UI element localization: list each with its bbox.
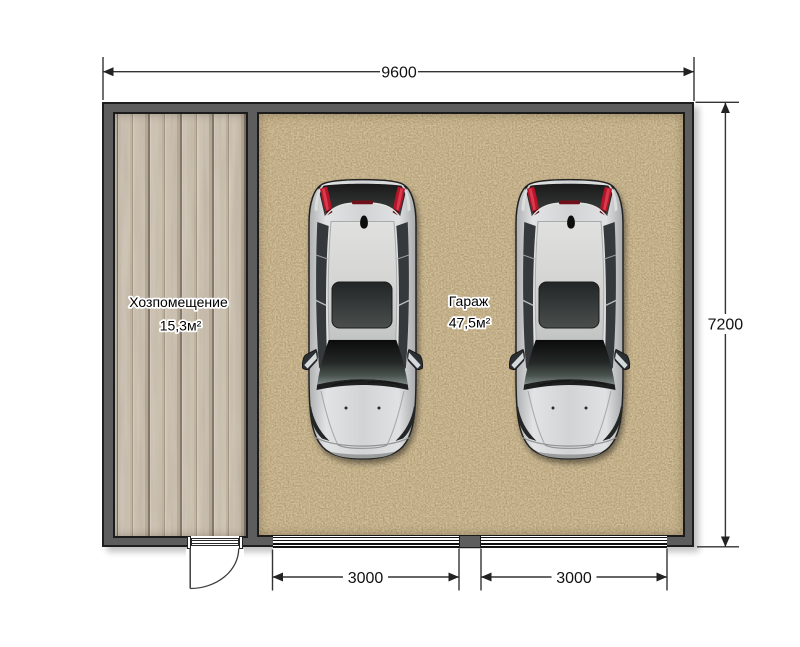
svg-text:3000: 3000 bbox=[556, 570, 592, 587]
svg-text:7200: 7200 bbox=[708, 317, 744, 334]
svg-text:47,5м²: 47,5м² bbox=[449, 315, 491, 331]
svg-text:9600: 9600 bbox=[381, 65, 417, 82]
svg-text:Хозпомещение: Хозпомещение bbox=[129, 294, 228, 310]
svg-text:3000: 3000 bbox=[348, 570, 384, 587]
svg-text:15,3м²: 15,3м² bbox=[160, 318, 202, 334]
svg-text:Гараж: Гараж bbox=[449, 293, 489, 309]
